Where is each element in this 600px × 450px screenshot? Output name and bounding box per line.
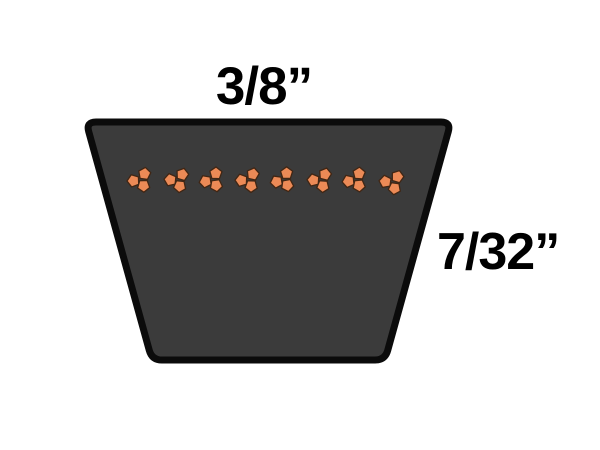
side-depth-label: 7/32” (437, 223, 559, 281)
belt-body (88, 122, 449, 360)
top-width-label: 3/8” (216, 57, 312, 116)
belt-cross-section-figure: 3/8” 7/32” (0, 0, 600, 450)
belt-diagram: 3/8” 7/32” (0, 0, 600, 450)
